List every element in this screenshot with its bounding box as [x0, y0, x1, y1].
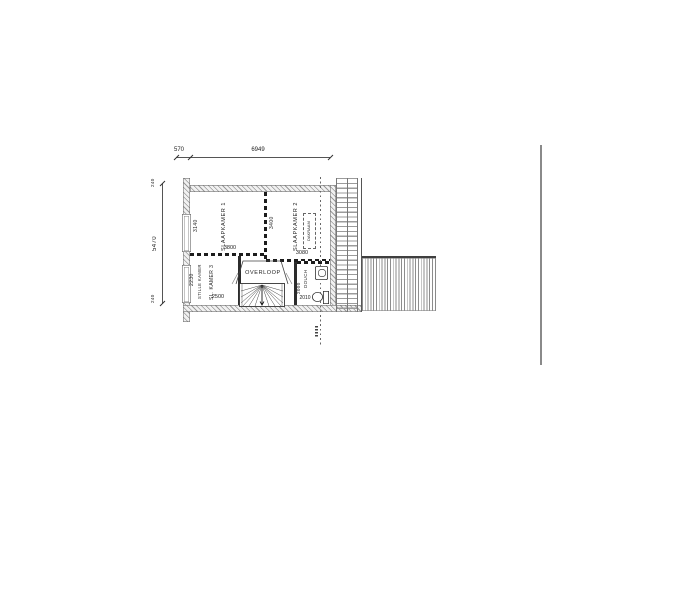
- spiral-stairs: [239, 283, 285, 307]
- dim-bedroom2-width: 3080: [284, 250, 320, 257]
- left-dimension-line: [162, 183, 163, 304]
- room-label-bedroom1: SLAAPKAMER 1: [221, 201, 227, 251]
- floor-plan-canvas: 570 6949 5470 240 240 DAKRAAM SLAAPKAMER…: [0, 0, 690, 600]
- dim-room3-width: 2500: [202, 294, 234, 301]
- dim-bedroom1-width: 3800: [210, 245, 250, 252]
- skylight-outline: DAKRAAM: [303, 213, 316, 249]
- wall-top: [190, 185, 336, 192]
- wall-between-bedrooms: [264, 192, 267, 259]
- toilet-icon: [312, 291, 330, 304]
- roof-strip-line: [336, 178, 337, 312]
- dim-top-total: 6949: [233, 147, 283, 154]
- room-label-bedroom2: SLAAPKAMER 2: [293, 201, 299, 251]
- right-border-line: [540, 145, 542, 365]
- dim-bedroom1-depth: 3140: [193, 211, 199, 241]
- dim-left-top: 240: [150, 175, 155, 190]
- wall-shower-top: [297, 261, 330, 264]
- roof-strip-line: [357, 178, 358, 312]
- dim-room3-depth: 2230: [189, 267, 195, 293]
- roof-slope-strip: [336, 178, 362, 312]
- dim-top-offset: 570: [166, 147, 192, 154]
- window-left-upper: [182, 214, 191, 252]
- section-note-text: [315, 326, 318, 338]
- roof-strip-line: [347, 178, 348, 312]
- flat-roof-deck: [362, 256, 436, 311]
- skylight-label: DAKRAAM: [306, 217, 311, 245]
- landing-outline: [232, 258, 292, 285]
- knee-wall-bedroom1: [190, 253, 266, 256]
- section-line: [320, 177, 321, 345]
- dim-left-bottom: 240: [150, 291, 155, 306]
- room-label-shower: DOUCH: [303, 266, 308, 292]
- top-dimension-line: [176, 157, 330, 158]
- sink-icon: [315, 266, 328, 280]
- dim-left-total: 5470: [152, 222, 158, 266]
- dim-bedroom2-depth: 3400: [269, 208, 275, 238]
